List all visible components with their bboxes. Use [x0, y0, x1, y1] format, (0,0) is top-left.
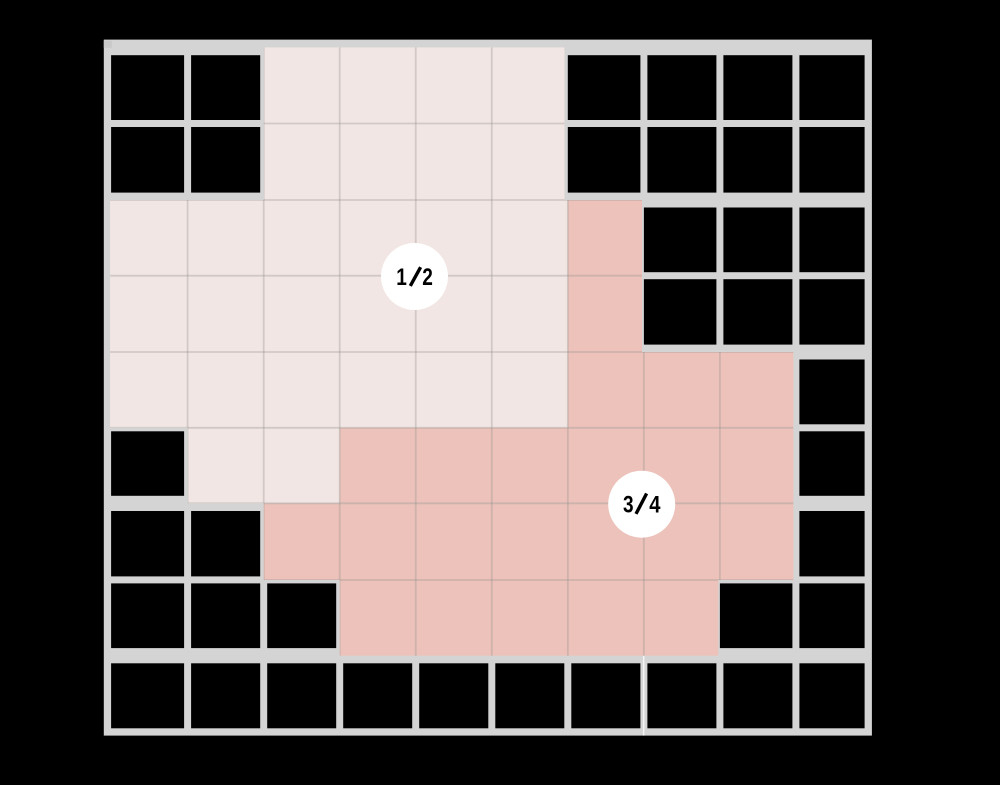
svg-text:2: 2	[422, 264, 433, 291]
svg-text:4: 4	[649, 492, 661, 519]
svg-text:3: 3	[623, 492, 634, 519]
svg-text:1: 1	[396, 264, 407, 291]
